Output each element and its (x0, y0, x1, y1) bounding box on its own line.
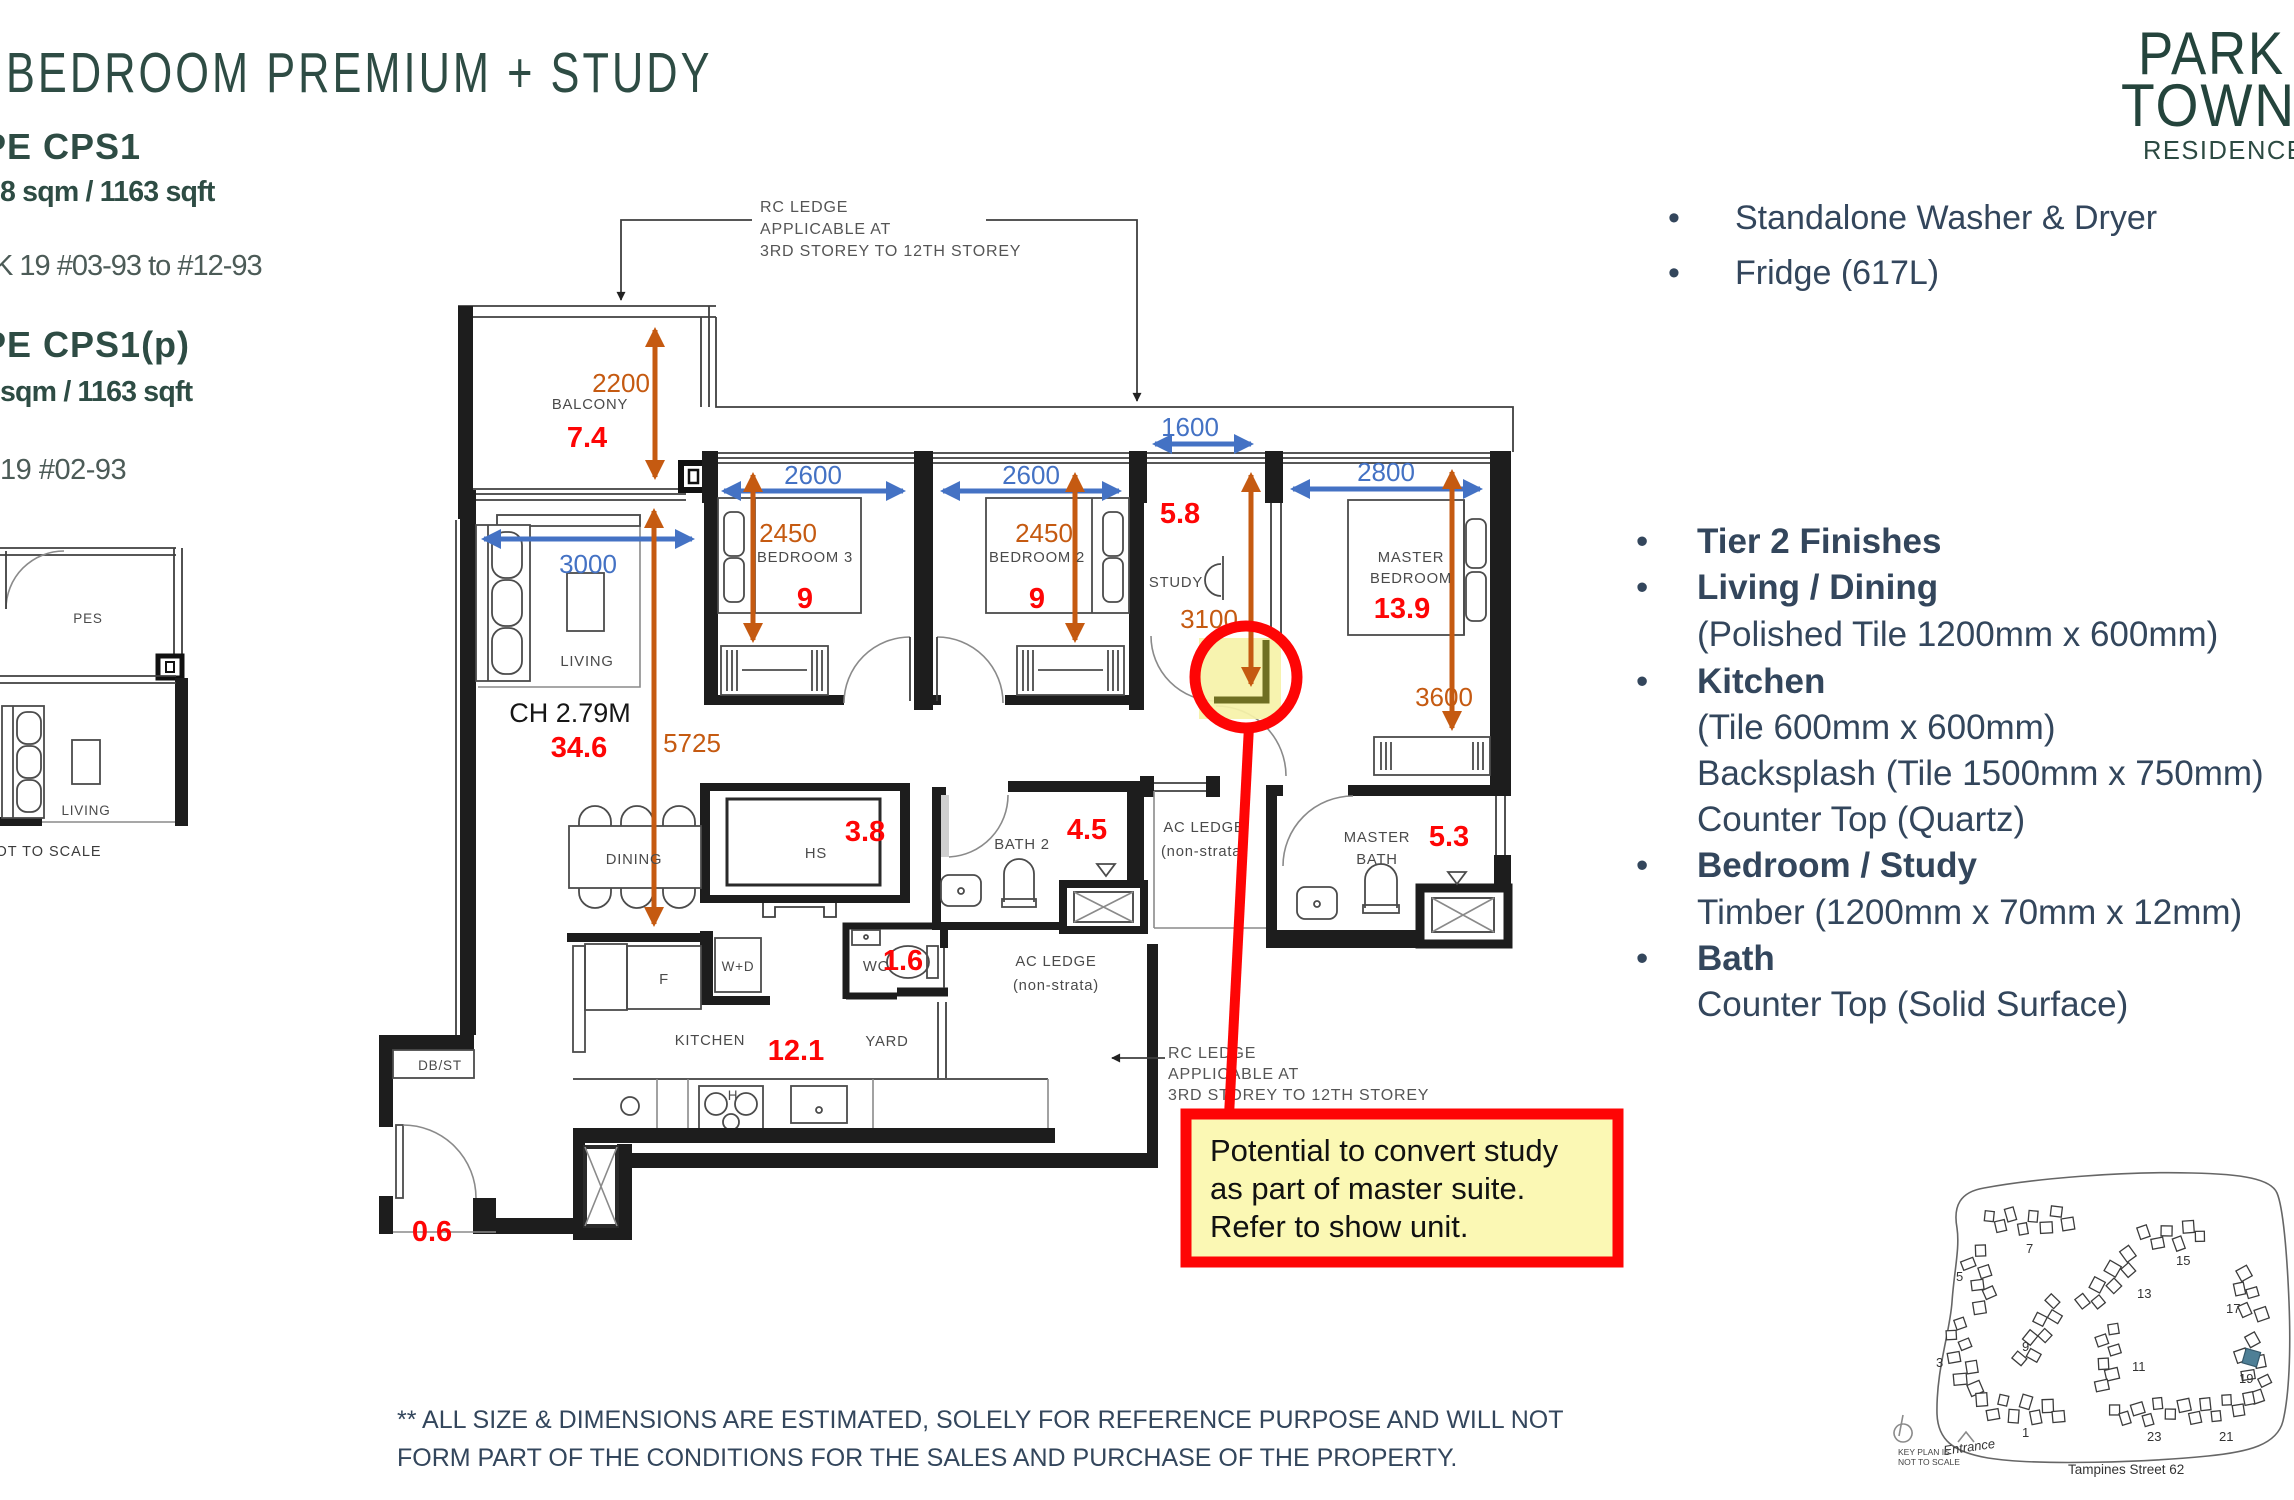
svg-text:LIVING: LIVING (61, 803, 110, 818)
svg-text:34.6: 34.6 (551, 732, 607, 764)
svg-text:3RD STOREY TO 12TH STOREY: 3RD STOREY TO 12TH STOREY (760, 243, 1021, 260)
svg-text:2200: 2200 (592, 368, 650, 398)
svg-text:11: 11 (2132, 1359, 2146, 1374)
svg-text:13: 13 (2137, 1286, 2151, 1301)
svg-text:3: 3 (1936, 1355, 1943, 1370)
svg-text:2800: 2800 (1357, 457, 1415, 487)
svg-text:3600: 3600 (1415, 682, 1473, 712)
svg-text:2450: 2450 (759, 518, 817, 548)
svg-text:H: H (728, 1088, 739, 1103)
svg-text:MASTER: MASTER (1378, 550, 1444, 566)
svg-text:STUDY: STUDY (1149, 575, 1203, 591)
svg-text:3RD STOREY TO 12TH STOREY: 3RD STOREY TO 12TH STOREY (1168, 1087, 1429, 1104)
svg-text:2600: 2600 (784, 460, 842, 490)
svg-text:13.9: 13.9 (1374, 593, 1430, 625)
svg-text:(non-strata): (non-strata) (1161, 844, 1247, 860)
svg-text:Potential to convert study: Potential to convert study (1210, 1133, 1559, 1168)
svg-text:12.1: 12.1 (768, 1035, 824, 1067)
svg-text:DB/ST: DB/ST (418, 1058, 462, 1073)
svg-text:NOT TO SCALE: NOT TO SCALE (1898, 1457, 1960, 1467)
svg-text:RC LEDGE: RC LEDGE (760, 199, 848, 216)
svg-text:W+D: W+D (722, 959, 755, 974)
svg-text:3.8: 3.8 (845, 816, 885, 848)
svg-text:BATH 2: BATH 2 (994, 837, 1050, 853)
svg-text:1600: 1600 (1161, 412, 1219, 442)
svg-text:15: 15 (2176, 1253, 2190, 1268)
svg-text:5: 5 (1956, 1269, 1963, 1284)
svg-text:BALCONY: BALCONY (552, 397, 628, 413)
svg-text:YARD: YARD (865, 1034, 908, 1050)
svg-text:BATH: BATH (1356, 852, 1398, 868)
svg-text:PES: PES (73, 611, 102, 626)
svg-text:BEDROOM: BEDROOM (1370, 571, 1452, 587)
svg-text:LIVING: LIVING (560, 654, 613, 670)
svg-text:HS: HS (805, 846, 827, 862)
svg-text:NOT TO SCALE: NOT TO SCALE (0, 844, 102, 860)
svg-text:CH 2.79M: CH 2.79M (509, 698, 631, 728)
svg-text:23: 23 (2147, 1429, 2161, 1444)
svg-text:7.4: 7.4 (567, 422, 607, 454)
svg-text:2450: 2450 (1015, 518, 1073, 548)
svg-text:AC LEDGE: AC LEDGE (1015, 954, 1096, 970)
svg-text:5.8: 5.8 (1160, 498, 1200, 530)
svg-text:MASTER: MASTER (1344, 830, 1410, 846)
svg-text:F: F (659, 972, 669, 988)
svg-text:2600: 2600 (1002, 460, 1060, 490)
svg-text:RC LEDGE: RC LEDGE (1168, 1045, 1256, 1062)
svg-text:KITCHEN: KITCHEN (675, 1033, 746, 1049)
svg-text:as part of master suite.: as part of master suite. (1210, 1171, 1525, 1206)
svg-text:KEY PLAN IS: KEY PLAN IS (1898, 1447, 1950, 1457)
svg-text:4.5: 4.5 (1067, 814, 1107, 846)
svg-text:5725: 5725 (663, 728, 721, 758)
svg-text:1.6: 1.6 (883, 945, 923, 977)
svg-text:21: 21 (2219, 1429, 2233, 1444)
svg-text:19: 19 (2239, 1371, 2253, 1386)
svg-text:BEDROOM 2: BEDROOM 2 (989, 550, 1085, 566)
svg-text:BEDROOM 3: BEDROOM 3 (757, 550, 853, 566)
svg-text:9: 9 (2022, 1339, 2029, 1354)
svg-text:(non-strata): (non-strata) (1013, 978, 1099, 994)
svg-text:17: 17 (2226, 1301, 2240, 1316)
svg-text:DINING: DINING (606, 852, 663, 868)
svg-text:APPLICABLE AT: APPLICABLE AT (760, 221, 891, 238)
svg-text:9: 9 (797, 583, 813, 615)
svg-text:1: 1 (2022, 1425, 2029, 1440)
svg-text:AC LEDGE: AC LEDGE (1163, 820, 1244, 836)
svg-text:5.3: 5.3 (1429, 821, 1469, 853)
svg-text:Refer to show unit.: Refer to show unit. (1210, 1209, 1468, 1244)
svg-text:Entrance: Entrance (1942, 1436, 1996, 1458)
svg-text:3000: 3000 (559, 549, 617, 579)
svg-text:0.6: 0.6 (412, 1216, 452, 1248)
svg-text:9: 9 (1029, 583, 1045, 615)
svg-text:7: 7 (2026, 1241, 2033, 1256)
svg-text:Tampines Street 62: Tampines Street 62 (2068, 1462, 2184, 1477)
